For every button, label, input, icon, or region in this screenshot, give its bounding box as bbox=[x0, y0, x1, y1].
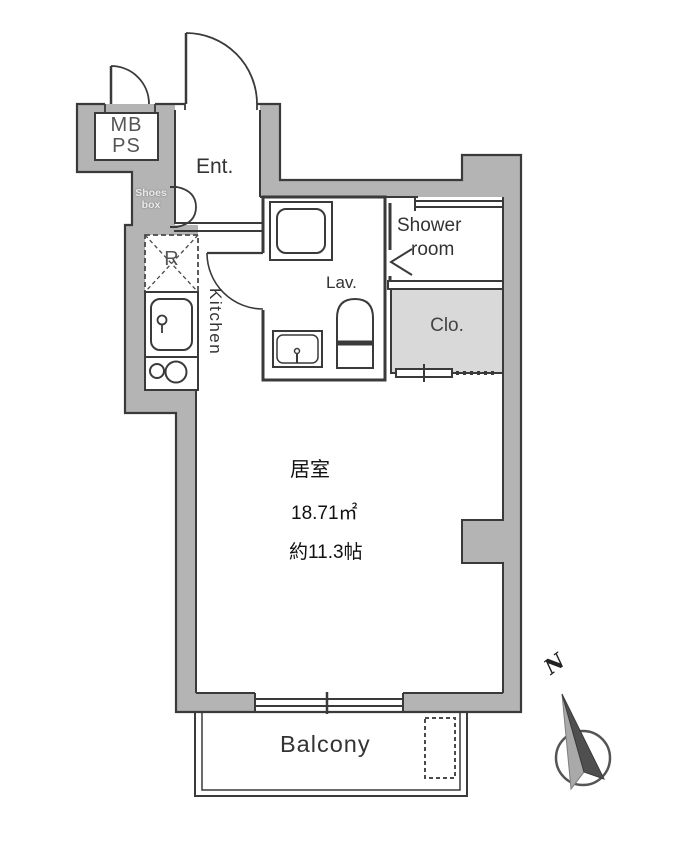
entrance-door bbox=[186, 33, 257, 104]
kitchen-sink-icon bbox=[145, 292, 198, 357]
wall-fills bbox=[77, 104, 521, 712]
shower-room-walls bbox=[388, 203, 503, 289]
water-heater-space bbox=[425, 718, 455, 778]
closet-area bbox=[391, 289, 503, 382]
compass-icon bbox=[556, 694, 610, 789]
meter-box-door bbox=[111, 66, 149, 104]
floor-plan: MB PS Ent. Shoes box R Kitchen Lav. Show… bbox=[0, 0, 686, 867]
washing-machine-pan bbox=[270, 202, 332, 260]
bathroom-unit bbox=[207, 197, 385, 380]
balcony-area bbox=[195, 712, 467, 796]
floor-plan-drawing bbox=[0, 0, 686, 867]
hand-basin-icon bbox=[273, 331, 322, 367]
balcony-window bbox=[255, 692, 403, 714]
toilet-icon bbox=[337, 299, 373, 368]
meter-box bbox=[95, 113, 158, 160]
stove-icon bbox=[145, 357, 198, 390]
shower-window bbox=[415, 197, 503, 211]
refrigerator-space-box bbox=[145, 235, 198, 292]
kitchen-counter bbox=[145, 235, 198, 390]
